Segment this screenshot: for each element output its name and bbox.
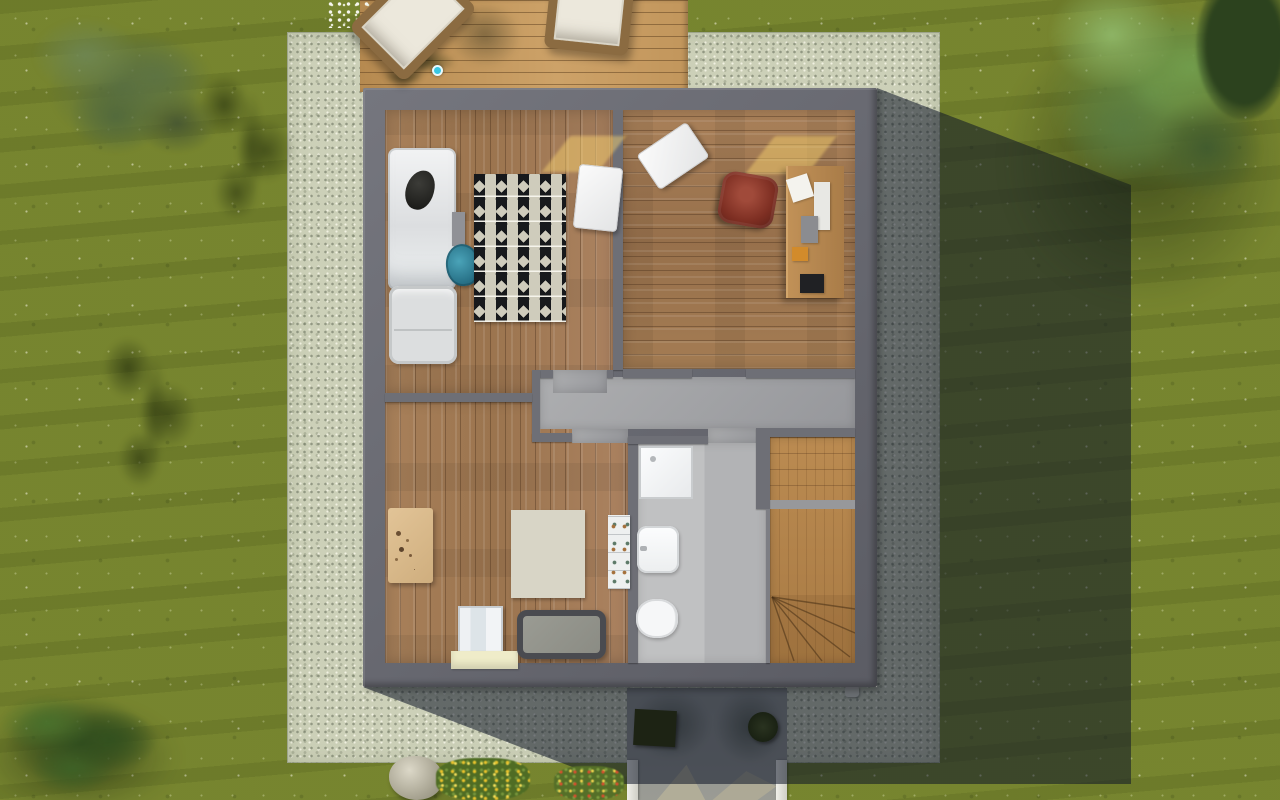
zigzag-rug[interactable] — [474, 174, 566, 322]
patchwork-rug[interactable] — [511, 510, 585, 598]
flowerbed-yellow[interactable] — [436, 758, 530, 800]
camera-marker[interactable] — [432, 65, 443, 76]
orange-box[interactable] — [792, 247, 808, 261]
render-viewport — [0, 0, 1280, 800]
crib-bed[interactable] — [517, 610, 606, 659]
bush-bottom-left[interactable] — [0, 676, 187, 800]
tree-top-left[interactable] — [20, 2, 238, 180]
palm-plant[interactable] — [256, 0, 372, 196]
porch-plant-left[interactable] — [612, 688, 707, 776]
kids-wardrobe[interactable] — [458, 606, 503, 654]
bedroom-white-table[interactable] — [573, 164, 623, 232]
toilet[interactable] — [636, 599, 678, 638]
toy-shelf[interactable] — [608, 515, 630, 589]
porch-plant-right[interactable] — [703, 672, 818, 788]
boulder[interactable] — [389, 756, 443, 800]
armchair[interactable] — [389, 286, 457, 364]
office-white-table[interactable] — [636, 122, 709, 190]
bedside-table[interactable] — [452, 212, 465, 246]
office-chair-red[interactable] — [716, 170, 780, 231]
sun-lounger-right[interactable] — [544, 0, 637, 56]
desk-mat-black[interactable] — [800, 274, 824, 293]
flowerbed-mixed[interactable] — [554, 766, 624, 800]
shower-tray[interactable] — [639, 446, 693, 499]
kids-table[interactable] — [388, 508, 433, 583]
cream-shelf[interactable] — [451, 651, 518, 669]
bathroom-sink[interactable] — [637, 526, 679, 573]
scene-objects-layer — [0, 0, 1280, 800]
under-desk-unit[interactable] — [801, 216, 818, 243]
tree-shadow-middle-left — [95, 328, 213, 510]
